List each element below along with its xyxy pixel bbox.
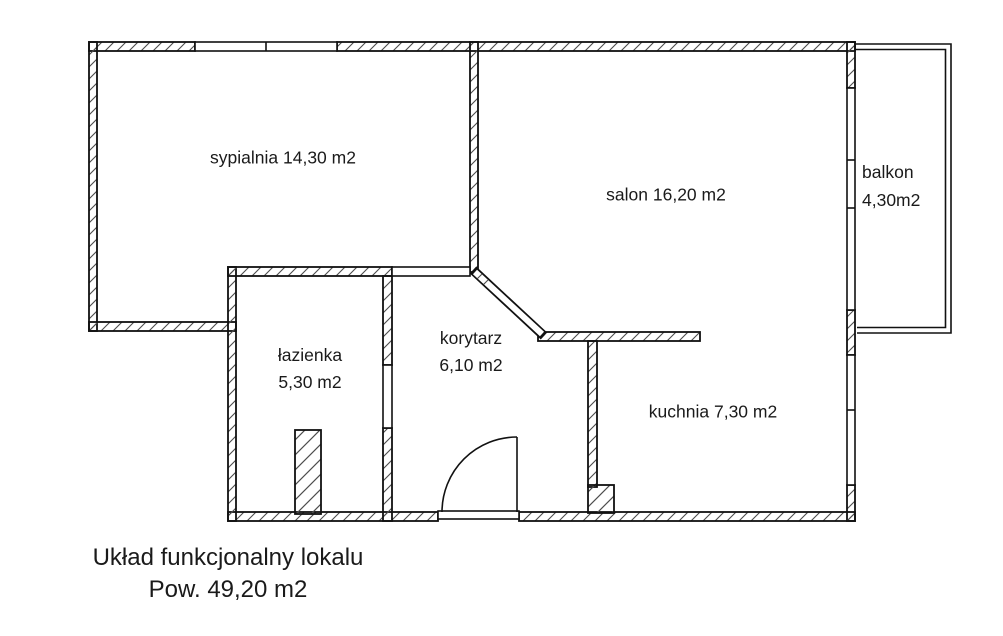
room-area-lazienka: 5,30 m2 [278,369,342,396]
floor-plan-canvas: sypialnia 14,30 m2 salon 16,20 m2 balkon… [0,0,1003,636]
room-name-balkon: balkon [862,158,920,186]
top-wall-right-segment [337,42,855,51]
entrance-door [442,437,517,512]
door-swing-arc [442,437,517,512]
room-label-sypialnia: sypialnia 14,30 m2 [210,145,356,172]
bathroom-door-opening [383,365,392,428]
livingroom-kitchen-wall [538,332,700,341]
partition-walls [383,267,519,519]
hall-kitchen-wall-pier [588,485,614,513]
bedroom-livingroom-wall [470,42,478,272]
bathroom-duct-pier [295,430,321,514]
hall-kitchen-wall [588,341,597,487]
balcony-door-window [847,88,855,310]
floor-plan-drawing [0,0,1003,636]
bathroom-left-wall [228,267,236,521]
room-label-salon: salon 16,20 m2 [606,182,726,209]
bedroom-bottom-wall [89,322,236,331]
bottom-wall-left-segment [228,512,438,521]
room-label-korytarz: korytarz 6,10 m2 [439,325,502,379]
room-name-korytarz: korytarz [439,325,502,352]
right-wall-middle-segment [847,310,855,355]
entrance-threshold [438,511,519,519]
room-label-balkon: balkon 4,30m2 [862,158,920,214]
room-area-korytarz: 6,10 m2 [439,352,502,379]
kitchen-window [847,355,855,485]
bathroom-hall-wall-upper [383,276,392,365]
room-label-lazienka: łazienka 5,30 m2 [278,342,342,396]
caption-title: Układ funkcjonalny lokalu [93,542,364,574]
left-wall [89,42,97,331]
top-wall-left-segment [89,42,195,51]
room-area-balkon: 4,30m2 [862,186,920,214]
bathroom-hall-wall-lower [383,428,392,521]
room-name-lazienka: łazienka [278,342,342,369]
bottom-wall-right-segment [519,512,855,521]
bathroom-top-wall [228,267,392,276]
room-label-kuchnia: kuchnia 7,30 m2 [649,399,777,426]
bedroom-hall-partition [392,267,470,276]
masonry-piers [295,430,614,514]
caption-total-area: Pow. 49,20 m2 [93,574,364,606]
right-wall-top-segment [847,42,855,88]
plan-caption: Układ funkcjonalny lokalu Pow. 49,20 m2 [93,542,364,606]
